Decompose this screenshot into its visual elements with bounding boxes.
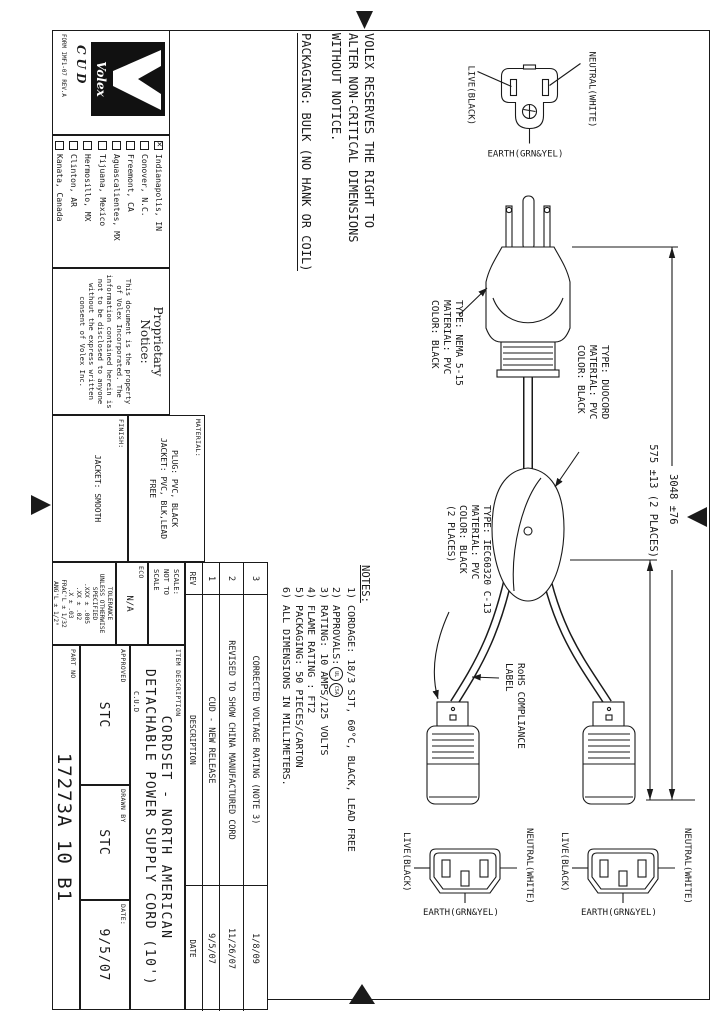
location-row: Kanata, Canada xyxy=(53,141,67,267)
reserves-notice: VOLEX RESERVES THE RIGHT TO ALTER NON-CR… xyxy=(328,33,377,333)
note-line-approvals: 2) APPROVALS:ULCSA xyxy=(329,565,344,1005)
finish-cell: FINISH: JACKET: SMOOTH xyxy=(52,415,128,562)
checkbox-icon xyxy=(98,141,107,150)
rev-date: 1/8/09 xyxy=(243,886,267,1011)
cud-mark: CUD xyxy=(74,45,88,87)
csa-mark-icon: CSA xyxy=(329,683,343,697)
c13-face-view-2: LIVE(BLACK) NEUTRAL(WHITE) EARTH(GRN&YEL… xyxy=(548,822,698,922)
rev-number: 2 xyxy=(219,563,243,595)
note-line: 1) CORDAGE: 18/3 SJT, 60°C, BLACK, LEAD … xyxy=(343,565,356,1005)
location-row: Freemont, CA xyxy=(123,141,137,267)
checkbox-icon xyxy=(154,141,163,150)
revision-table: 3 CORRECTED VOLTAGE RATING (NOTE 3) 1/8/… xyxy=(185,562,268,1010)
live-label: LIVE(BLACK) xyxy=(559,832,569,892)
overall-length-dimension: 3048 ±76 xyxy=(667,472,679,527)
c13-connector-side-view-upper xyxy=(583,702,635,804)
nema-plug-side-view xyxy=(486,196,570,377)
ul-mark-icon: UL xyxy=(329,667,343,681)
volex-wordmark: Volex xyxy=(94,42,108,116)
neutral-label: NEUTRAL(WHITE) xyxy=(524,828,534,904)
checkbox-icon xyxy=(69,141,78,150)
neutral-label: NEUTRAL(WHITE) xyxy=(587,51,597,127)
notes-block: NOTES: 1) CORDAGE: 18/3 SJT, 60°C, BLACK… xyxy=(278,565,371,1005)
nema-5-15-face-view: LIVE(BLACK) NEUTRAL(WHITE) EARTH(GRN&YEL… xyxy=(455,35,605,170)
rev-description: CORRECTED VOLTAGE RATING (NOTE 3) xyxy=(243,595,267,886)
note-line: 5) PACKAGING: 50 PIECES/CARTON xyxy=(291,565,304,1005)
volex-logo: Volex xyxy=(91,42,165,116)
leg-length-dimension: 575 ±13 (2 PLACES) xyxy=(647,418,659,560)
manufacturing-locations-cell: Indianapolis, IN Conover, N.C. Freemont,… xyxy=(52,135,170,268)
location-row: Clinton, AR xyxy=(67,141,81,267)
checkbox-icon xyxy=(126,141,135,150)
rev-number: 3 xyxy=(243,563,267,595)
rev-header: DATE xyxy=(184,886,202,1011)
earth-label: EARTH(GRN&YEL) xyxy=(581,908,657,918)
drawing-scan-viewport: VOLEX RESERVES THE RIGHT TO ALTER NON-CR… xyxy=(0,0,720,1012)
tolerance-cell: TOLERANCE UNLESS OTHERWISE SPECIFIED .XX… xyxy=(52,562,116,645)
rev-number: 1 xyxy=(202,563,219,595)
checkbox-icon xyxy=(83,141,92,150)
notes-heading: NOTES: xyxy=(359,565,371,1005)
item-description-line2: DETACHABLE POWER SUPPLY CORD (10') xyxy=(142,646,157,1009)
volex-v-icon xyxy=(109,42,165,116)
location-row: Aguascalientes, MX xyxy=(109,141,123,267)
rev-date: 11/26/07 xyxy=(219,886,243,1011)
rohs-label-callout: RoHS COMPLIANCE LABEL xyxy=(502,663,526,749)
rev-description: CUD - NEW RELEASE xyxy=(202,595,219,886)
material-cell: MATERIAL: PLUG: PVC, BLACK JACKET: PVC, … xyxy=(128,415,205,562)
rev-header: REV xyxy=(184,563,202,595)
y-junction-molding xyxy=(492,468,564,601)
iec-c13-callout: TYPE: IEC60320 C-13 MATERIAL: PVC COLOR:… xyxy=(444,505,492,614)
site-code: C.U.D xyxy=(132,691,140,712)
scale-cell: SCALE: NOT TO SCALE xyxy=(148,562,185,645)
earth-label: EARTH(GRN&YEL) xyxy=(488,149,564,159)
location-row: Indianapolis, IN xyxy=(152,141,166,267)
logo-cell: Volex CUD FORM IMF1-07 REV.A xyxy=(52,30,170,135)
checkbox-icon xyxy=(55,141,64,150)
part-number-cell: PART NO 17273A 10 B1 xyxy=(52,645,80,1010)
neutral-label: NEUTRAL(WHITE) xyxy=(682,828,692,904)
checkbox-icon xyxy=(140,141,149,150)
note-line: 4) FLAME RATING : FT2 xyxy=(304,565,317,1005)
duocord-callout: TYPE: DUOCORD MATERIAL: PVC COLOR: BLACK xyxy=(574,345,610,419)
rev-date: 9/5/07 xyxy=(202,886,219,1011)
item-description-cell: ITEM DESCRIPTION CORDSET - NORTH AMERICA… xyxy=(130,645,185,1010)
live-label: LIVE(BLACK) xyxy=(466,65,476,125)
checkbox-icon xyxy=(112,141,121,150)
part-number: 17273A 10 B1 xyxy=(53,646,75,1009)
proprietary-notice-cell: ProprietaryNotice: This document is the … xyxy=(52,268,170,415)
eco-cell: ECO N/A xyxy=(116,562,148,645)
form-number: FORM IMF1-07 REV.A xyxy=(60,34,66,97)
item-description-line1: CORDSET - NORTH AMERICAN xyxy=(158,646,173,1009)
location-row: Hermosillo, MX xyxy=(81,141,95,267)
earth-label: EARTH(GRN&YEL) xyxy=(423,908,499,918)
nema-plug-callout: TYPE: NEMA 5-15 MATERIAL: PVC COLOR: BLA… xyxy=(428,300,464,386)
c13-connector-side-view-lower xyxy=(427,702,479,804)
drawing-sheet: VOLEX RESERVES THE RIGHT TO ALTER NON-CR… xyxy=(0,0,720,1012)
c13-face-view-1: LIVE(BLACK) NEUTRAL(WHITE) EARTH(GRN&YEL… xyxy=(390,822,540,922)
packaging-note: PACKAGING: BULK (NO HANK OR COIL) xyxy=(299,33,313,271)
approved-cell: APPROVED STC xyxy=(80,645,130,785)
drawn-by-cell: DRAWN BY STC xyxy=(80,785,130,900)
note-line: 3) RATING: 10 AMPS/125 VOLTS xyxy=(316,565,329,1005)
rev-header: DESCRIPTION xyxy=(184,595,202,886)
live-label: LIVE(BLACK) xyxy=(401,832,411,892)
rev-description: REVISED TO SHOW CHINA MANUFACTURED CORD xyxy=(219,595,243,886)
location-row: Conover, N.C. xyxy=(138,141,152,267)
date-cell: DATE: 9/5/07 xyxy=(80,900,130,1010)
location-row: Tijuana, Mexico xyxy=(95,141,109,267)
note-line: 6) ALL DIMENSIONS IN MILLIMETERS. xyxy=(278,565,291,1005)
